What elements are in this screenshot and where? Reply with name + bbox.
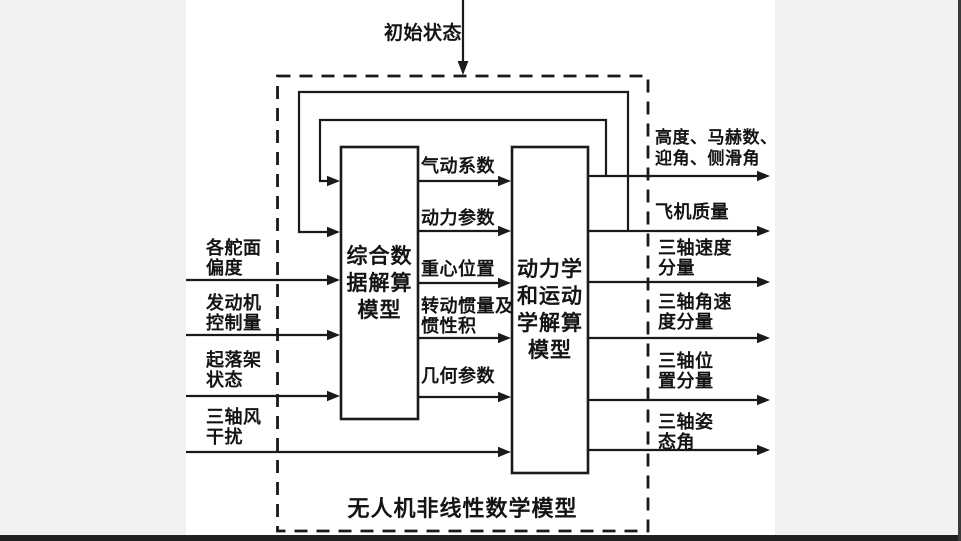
label-initial-state: 初始状态 <box>384 24 462 44</box>
label-output-angular-rate-components: 三轴角速 度分量 <box>658 292 732 332</box>
label-output-aircraft-mass: 飞机质量 <box>655 202 729 222</box>
label-aero-coefficients: 气动系数 <box>421 156 495 176</box>
label-box-dynamics-solver: 动力学 和运动 学解算 模型 <box>512 147 588 473</box>
diagram-caption: 无人机非线性数学模型 <box>277 491 648 523</box>
label-cg-position: 重心位置 <box>421 259 495 279</box>
label-input-engine: 发动机 控制量 <box>206 293 262 333</box>
label-input-control-surfaces: 各舵面 偏度 <box>206 238 262 278</box>
label-output-position-components: 三轴位 置分量 <box>658 351 714 391</box>
label-input-wind: 三轴风 干扰 <box>206 407 262 447</box>
label-inertia: 转动惯量及 惯性积 <box>421 296 514 336</box>
label-output-attitude-angles: 三轴姿 态角 <box>658 412 714 452</box>
label-output-velocity-components: 三轴速度 分量 <box>658 238 732 278</box>
screenshot-root: 初始状态 各舵面 偏度 发动机 控制量 起落架 状态 三轴风 干扰 气动系数 动… <box>0 0 961 541</box>
window-bottom-border <box>0 535 961 541</box>
label-box-data-solver: 综合数 据解算 模型 <box>341 147 418 419</box>
label-output-altitude-mach-aoa-sideslip: 高度、马赫数、 迎角、侧滑角 <box>655 127 778 169</box>
output-arrowheads <box>757 171 770 455</box>
label-geometry-parameters: 几何参数 <box>421 366 495 386</box>
initial-state-arrowhead <box>458 61 469 75</box>
arrowheads-into-data-solver <box>327 176 340 401</box>
label-power-parameters: 动力参数 <box>421 208 495 228</box>
label-input-landing-gear: 起落架 状态 <box>206 350 262 390</box>
